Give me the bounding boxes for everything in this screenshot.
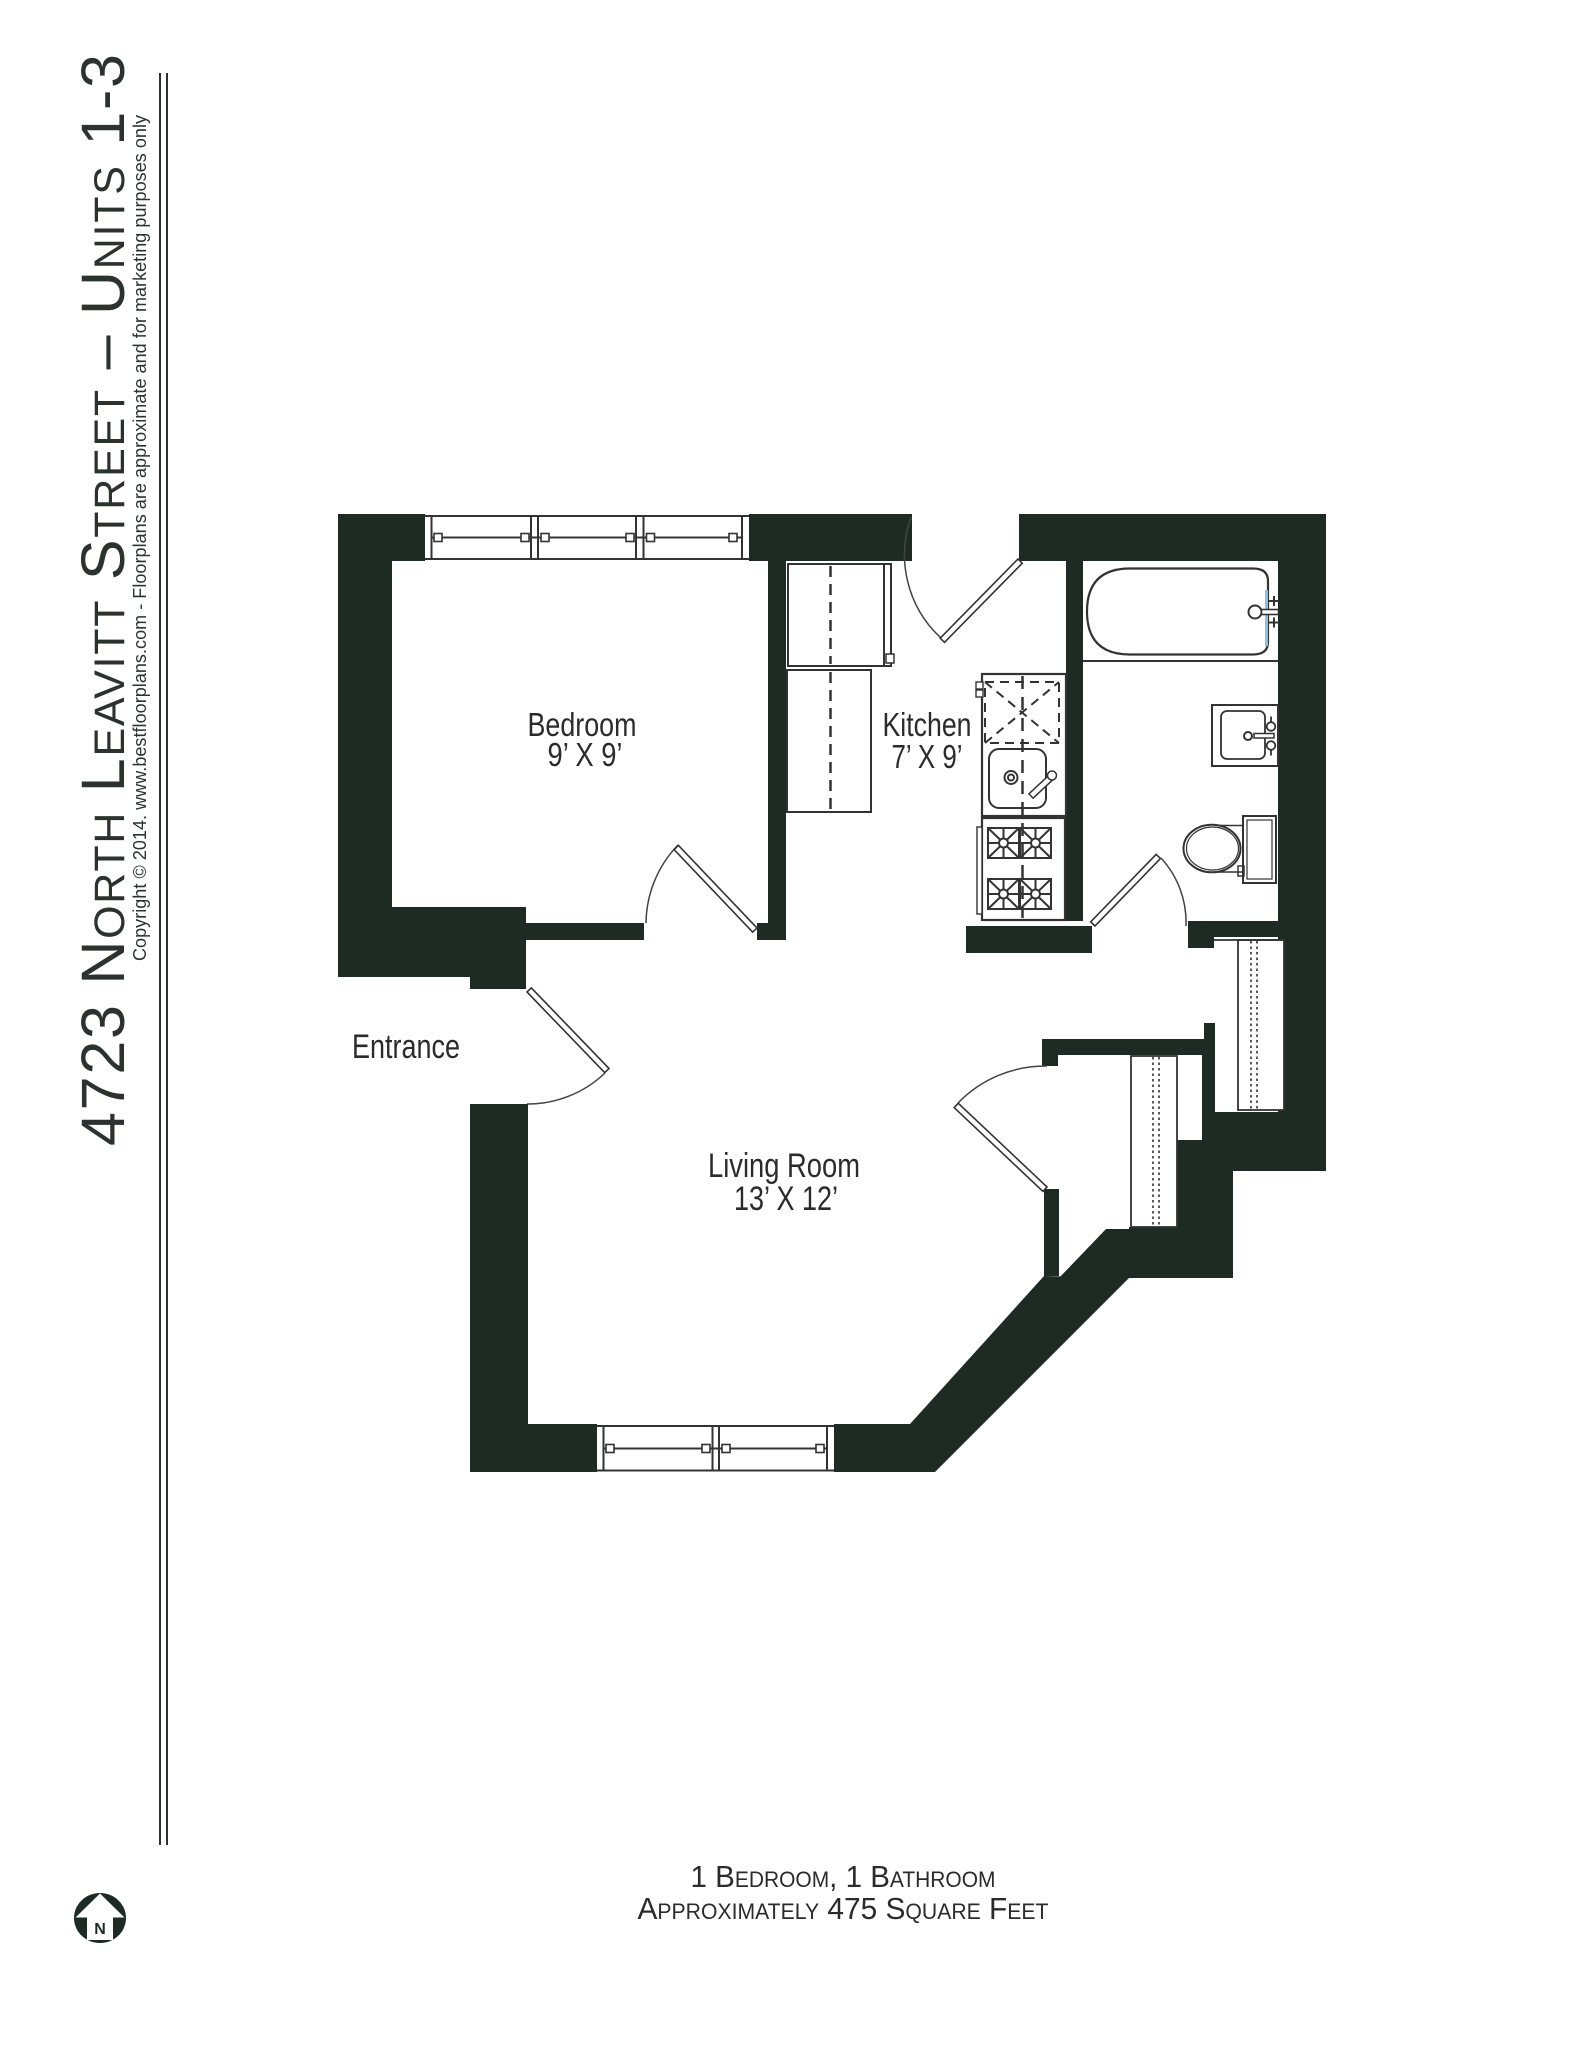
- svg-text:7’ X 9’: 7’ X 9’: [892, 738, 963, 775]
- svg-text:9’ X 9’: 9’ X 9’: [548, 736, 623, 773]
- svg-text:Copyright © 2014. www.bestfloo: Copyright © 2014. www.bestfloorplans.com…: [130, 115, 150, 961]
- svg-text:N: N: [94, 1921, 106, 1938]
- svg-text:13’ X 12’: 13’ X 12’: [734, 1180, 838, 1218]
- svg-text:1 Bedroom, 1 Bathroom: 1 Bedroom, 1 Bathroom: [691, 1859, 996, 1894]
- svg-text:Approximately 475 Square Feet: Approximately 475 Square Feet: [638, 1891, 1049, 1926]
- svg-text:Entrance: Entrance: [352, 1028, 460, 1066]
